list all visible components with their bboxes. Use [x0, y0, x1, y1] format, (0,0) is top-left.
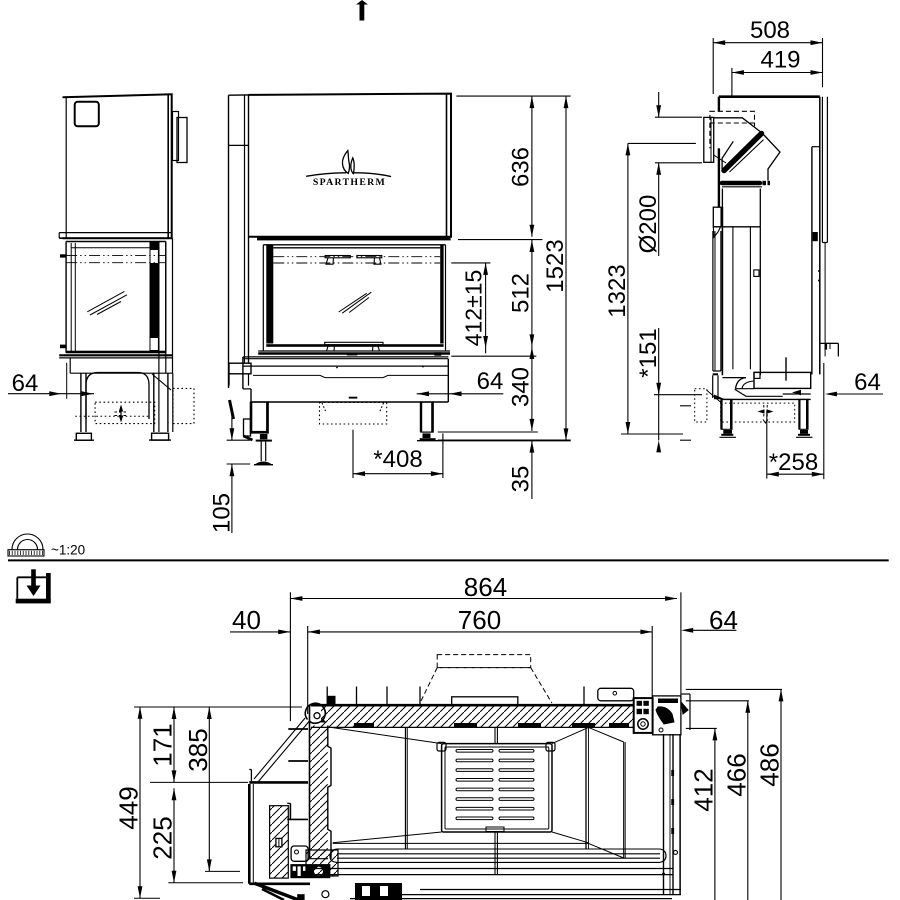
svg-text:40: 40: [232, 605, 261, 635]
svg-text:171: 171: [148, 723, 178, 766]
svg-text:1323: 1323: [604, 264, 631, 317]
svg-text:225: 225: [148, 816, 178, 859]
svg-text:SPARTHERM: SPARTHERM: [313, 177, 386, 188]
svg-text:1523: 1523: [542, 239, 569, 292]
svg-text:760: 760: [458, 605, 501, 635]
svg-text:Ø200: Ø200: [635, 195, 662, 254]
svg-text:64: 64: [854, 369, 881, 396]
svg-text:*258: *258: [769, 449, 818, 476]
svg-text:340: 340: [508, 367, 535, 407]
svg-text:508: 508: [750, 17, 790, 44]
svg-text:864: 864: [464, 572, 507, 602]
svg-text:412: 412: [688, 768, 718, 811]
svg-text:419: 419: [760, 47, 800, 74]
svg-text:486: 486: [755, 743, 785, 786]
svg-text:*151: *151: [635, 328, 662, 377]
svg-text:385: 385: [183, 728, 213, 771]
svg-text:35: 35: [508, 466, 535, 493]
svg-text:64: 64: [12, 370, 39, 397]
svg-text:105: 105: [209, 493, 236, 533]
svg-text:*408: *408: [373, 446, 422, 473]
svg-text:64: 64: [709, 605, 738, 635]
svg-text:466: 466: [721, 753, 751, 796]
svg-text:512: 512: [508, 273, 535, 313]
svg-text:64: 64: [477, 368, 504, 395]
svg-text:449: 449: [114, 786, 144, 829]
svg-text:636: 636: [508, 147, 535, 187]
svg-text:412±15: 412±15: [461, 270, 487, 347]
svg-text:~1:20: ~1:20: [51, 543, 85, 558]
